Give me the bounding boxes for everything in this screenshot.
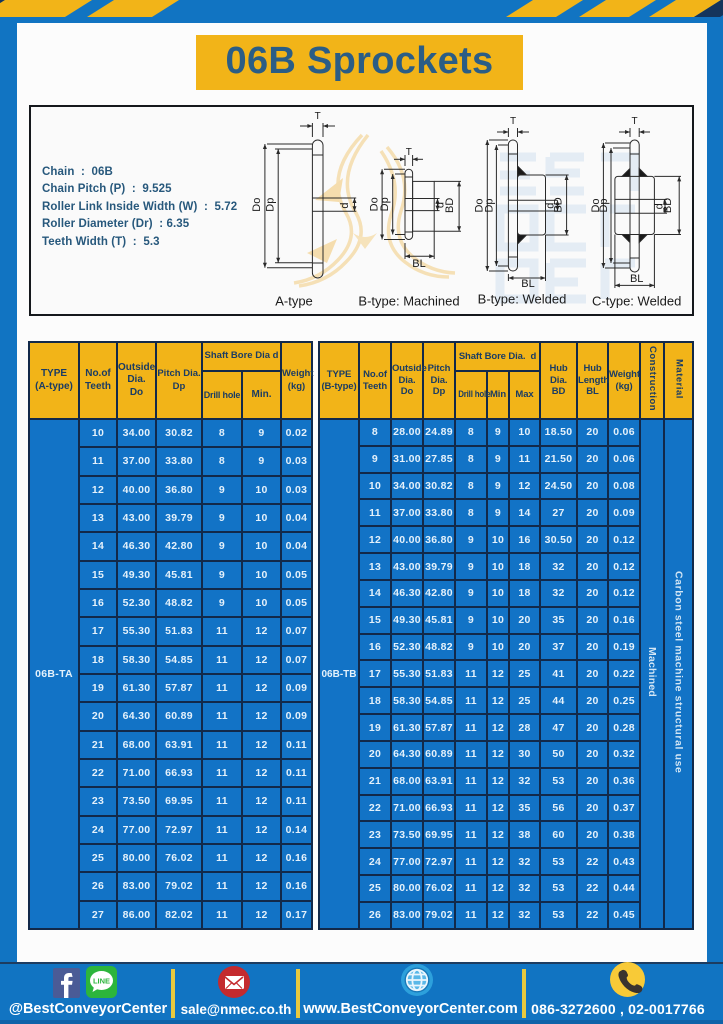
svg-text:B-type: Machined: B-type: Machined: [358, 294, 459, 309]
svg-text:BD: BD: [444, 198, 456, 213]
svg-text:C-type: Welded: C-type: Welded: [592, 294, 681, 309]
svg-text:Do: Do: [251, 198, 263, 212]
svg-text:T: T: [315, 111, 321, 122]
svg-text:Dp: Dp: [598, 198, 610, 212]
svg-text:BL: BL: [412, 258, 425, 270]
svg-text:BD: BD: [662, 198, 674, 213]
svg-text:A-type: A-type: [275, 294, 313, 309]
svg-text:BD: BD: [553, 197, 565, 212]
svg-text:Dp: Dp: [265, 198, 277, 212]
svg-text:B-type: Welded: B-type: Welded: [478, 292, 567, 307]
svg-text:Dp: Dp: [379, 197, 391, 211]
svg-text:T: T: [510, 116, 516, 127]
svg-text:T: T: [632, 116, 638, 127]
svg-text:d: d: [339, 202, 351, 208]
svg-text:BL: BL: [630, 273, 643, 285]
svg-text:BL: BL: [521, 278, 534, 290]
svg-text:T: T: [406, 147, 412, 158]
svg-text:Dp: Dp: [484, 198, 496, 212]
svg-text:LINE: LINE: [93, 977, 110, 986]
